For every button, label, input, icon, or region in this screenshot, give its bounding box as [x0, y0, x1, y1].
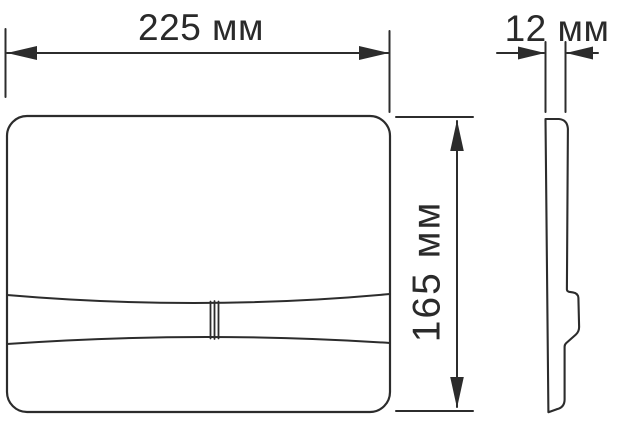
front-view: [7, 116, 390, 412]
height-arrow-down-icon: [450, 377, 464, 408]
side-profile-outline: [546, 119, 580, 412]
width-arrow-left-icon: [7, 46, 37, 60]
height-arrow-up-icon: [450, 120, 464, 151]
button-split-lines: [211, 301, 219, 339]
front-plate-outline: [7, 116, 390, 412]
width-dimension-label: 225 мм: [101, 9, 301, 46]
thickness-dimension-label: 12 мм: [467, 10, 618, 47]
height-dimension-label: 165 мм: [408, 172, 447, 372]
rocker-band-lower-curve: [7, 337, 390, 344]
drawing-canvas: [0, 0, 618, 430]
thickness-dimension: [497, 42, 598, 112]
rocker-band-upper-curve: [7, 294, 390, 303]
side-view: [546, 119, 580, 412]
technical-drawing: 225 мм 12 мм 165 мм: [0, 0, 618, 430]
width-arrow-right-icon: [359, 46, 389, 60]
